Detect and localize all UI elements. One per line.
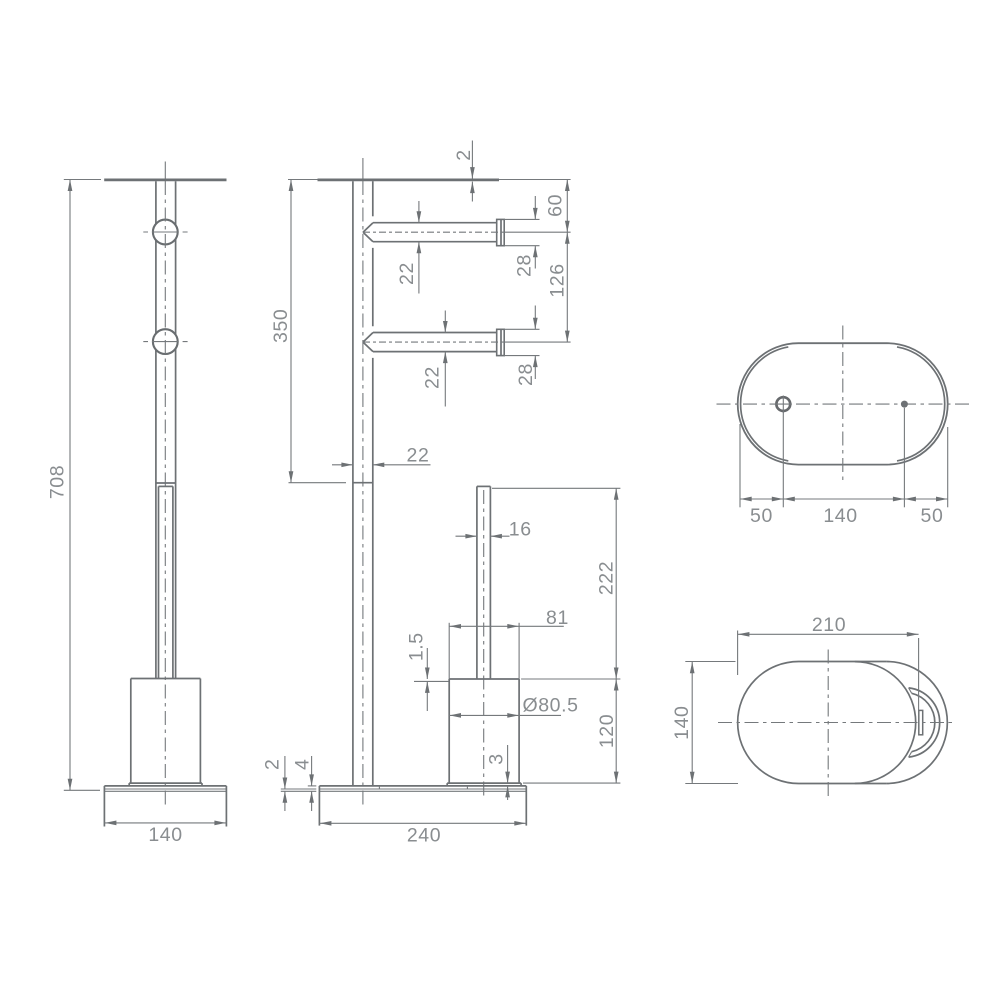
svg-text:28: 28 [513, 254, 535, 277]
svg-text:50: 50 [750, 505, 773, 527]
svg-text:708: 708 [47, 465, 69, 499]
svg-text:120: 120 [596, 714, 618, 748]
svg-text:240: 240 [407, 825, 441, 847]
svg-text:2: 2 [262, 759, 284, 770]
svg-text:50: 50 [921, 505, 944, 527]
svg-text:16: 16 [509, 519, 532, 541]
svg-text:22: 22 [396, 262, 418, 285]
svg-text:22: 22 [422, 366, 444, 389]
svg-text:81: 81 [546, 607, 569, 629]
svg-text:2: 2 [453, 149, 475, 160]
svg-text:140: 140 [671, 706, 693, 740]
svg-text:222: 222 [596, 561, 618, 595]
svg-text:350: 350 [270, 309, 292, 343]
svg-text:140: 140 [823, 505, 857, 527]
svg-text:22: 22 [407, 445, 430, 467]
svg-text:1.5: 1.5 [405, 632, 427, 661]
svg-text:210: 210 [812, 614, 846, 636]
svg-text:140: 140 [148, 824, 182, 846]
svg-text:Ø80.5: Ø80.5 [522, 695, 578, 717]
svg-text:4: 4 [291, 759, 313, 770]
svg-text:126: 126 [546, 263, 568, 297]
svg-text:60: 60 [545, 194, 567, 217]
svg-text:28: 28 [515, 363, 537, 386]
svg-text:3: 3 [485, 753, 507, 764]
